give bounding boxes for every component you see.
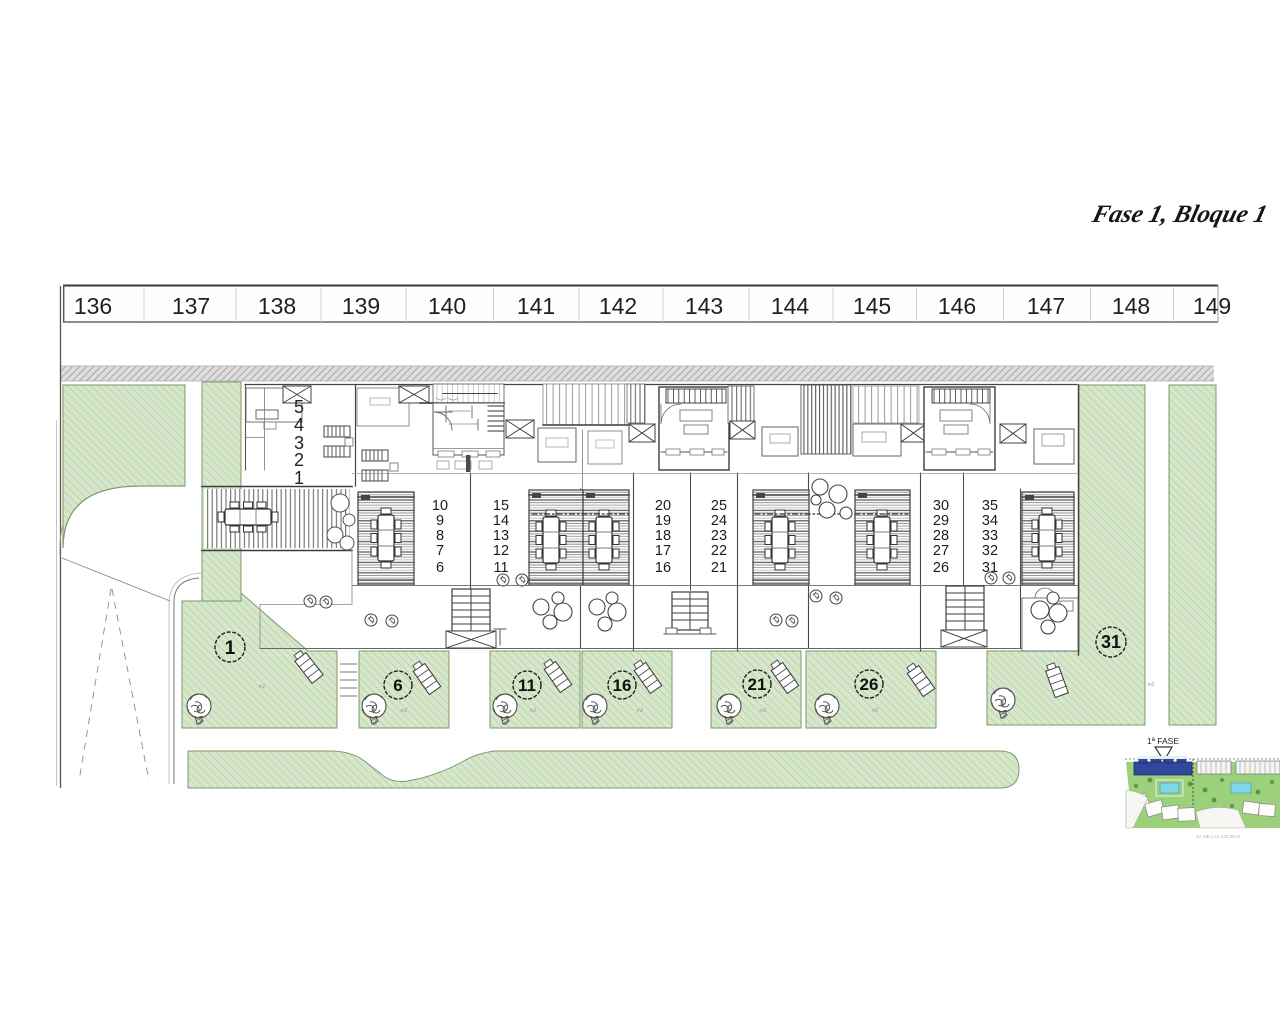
svg-text:138: 138 bbox=[258, 293, 296, 319]
svg-text:33: 33 bbox=[982, 528, 998, 544]
svg-text:6: 6 bbox=[436, 560, 444, 576]
svg-text:8: 8 bbox=[436, 528, 444, 544]
svg-text:141: 141 bbox=[517, 293, 555, 319]
svg-text:23: 23 bbox=[711, 528, 727, 544]
svg-text:140: 140 bbox=[428, 293, 466, 319]
svg-text:136: 136 bbox=[74, 293, 112, 319]
svg-text:16: 16 bbox=[613, 676, 632, 695]
svg-text:13: 13 bbox=[493, 528, 509, 544]
svg-text:144: 144 bbox=[771, 293, 810, 319]
svg-text:Fase 1, Bloque 1: Fase 1, Bloque 1 bbox=[1089, 200, 1270, 228]
svg-text:145: 145 bbox=[853, 293, 891, 319]
svg-text:29: 29 bbox=[933, 513, 949, 529]
svg-text:21: 21 bbox=[748, 675, 767, 694]
svg-text:14: 14 bbox=[493, 513, 509, 529]
svg-text:137: 137 bbox=[172, 293, 210, 319]
svg-text:1ª FASE: 1ª FASE bbox=[1147, 736, 1179, 746]
svg-text:7: 7 bbox=[436, 543, 444, 559]
svg-text:26: 26 bbox=[860, 675, 879, 694]
svg-text:149: 149 bbox=[1193, 293, 1231, 319]
svg-text:m2: m2 bbox=[259, 684, 266, 690]
svg-text:30: 30 bbox=[933, 498, 949, 514]
svg-text:20: 20 bbox=[655, 498, 671, 514]
svg-text:31: 31 bbox=[1101, 632, 1121, 652]
svg-text:9: 9 bbox=[436, 513, 444, 529]
svg-text:11: 11 bbox=[518, 676, 536, 695]
svg-text:11: 11 bbox=[493, 560, 508, 576]
svg-text:35: 35 bbox=[982, 498, 998, 514]
svg-text:143: 143 bbox=[685, 293, 723, 319]
svg-text:12: 12 bbox=[493, 543, 509, 559]
svg-text:28: 28 bbox=[933, 528, 949, 544]
svg-text:147: 147 bbox=[1027, 293, 1065, 319]
svg-text:m2: m2 bbox=[872, 708, 879, 714]
svg-text:146: 146 bbox=[938, 293, 976, 319]
svg-text:6: 6 bbox=[393, 676, 402, 695]
svg-text:18: 18 bbox=[655, 528, 671, 544]
svg-text:1: 1 bbox=[294, 468, 304, 488]
svg-text:32: 32 bbox=[982, 543, 998, 559]
svg-text:16: 16 bbox=[655, 560, 671, 576]
svg-text:5: 5 bbox=[294, 397, 304, 417]
svg-text:24: 24 bbox=[711, 513, 727, 529]
svg-text:10: 10 bbox=[432, 498, 448, 514]
svg-text:142: 142 bbox=[599, 293, 637, 319]
svg-text:19: 19 bbox=[655, 513, 671, 529]
svg-text:2: 2 bbox=[294, 450, 304, 470]
svg-text:139: 139 bbox=[342, 293, 380, 319]
svg-text:m2: m2 bbox=[530, 708, 537, 714]
svg-text:34: 34 bbox=[982, 513, 998, 529]
svg-text:15: 15 bbox=[493, 498, 509, 514]
svg-text:m2: m2 bbox=[401, 708, 408, 714]
svg-text:22: 22 bbox=[711, 543, 727, 559]
svg-text:1: 1 bbox=[225, 638, 236, 659]
svg-text:17: 17 bbox=[655, 543, 671, 559]
svg-text:4: 4 bbox=[294, 415, 304, 435]
svg-text:21: 21 bbox=[711, 560, 727, 576]
svg-text:25: 25 bbox=[711, 498, 727, 514]
svg-text:m2: m2 bbox=[760, 708, 767, 714]
svg-text:m2: m2 bbox=[1148, 682, 1155, 688]
svg-text:148: 148 bbox=[1112, 293, 1150, 319]
svg-text:AV. DE LAS COLINAS: AV. DE LAS COLINAS bbox=[1196, 834, 1241, 839]
svg-text:26: 26 bbox=[933, 560, 949, 576]
svg-text:m2: m2 bbox=[637, 708, 644, 714]
svg-text:27: 27 bbox=[933, 543, 949, 559]
